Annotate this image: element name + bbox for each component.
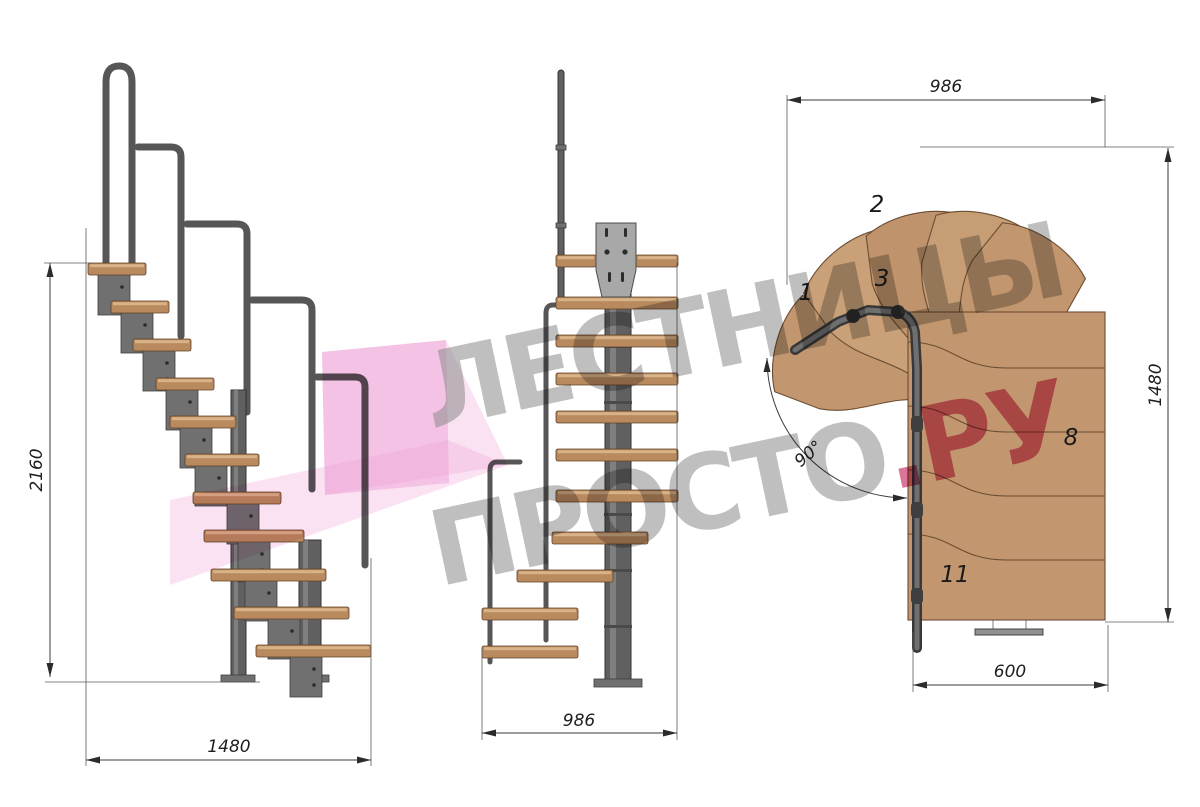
tread-top-highlight	[90, 264, 144, 267]
mounting-plate	[596, 223, 636, 297]
tread-top-highlight	[187, 455, 257, 458]
tread-top-highlight	[113, 302, 167, 305]
dimension-label-1480-plan: 1480	[1146, 363, 1166, 406]
dimension-side-width: 1480	[86, 558, 371, 766]
side-elevation-view: 2160 1480	[27, 66, 371, 766]
tread-top-highlight	[135, 340, 189, 343]
tread-top-highlight	[638, 256, 676, 259]
step-module	[290, 656, 322, 697]
handrail-loop	[106, 66, 132, 266]
rod-joint	[556, 145, 566, 150]
module-bolt	[217, 476, 221, 480]
module-bolt	[312, 667, 316, 671]
module-bolt	[267, 591, 271, 595]
tread-top-highlight	[236, 608, 347, 611]
tread-top-highlight	[258, 646, 369, 649]
tread-top-highlight	[172, 417, 234, 420]
dimension-label-600: 600	[994, 662, 1026, 682]
pole-base-flange-front	[594, 679, 642, 687]
dimension-label-2160: 2160	[27, 448, 47, 491]
tread-top-highlight	[558, 256, 594, 259]
handrail-segment	[252, 300, 312, 489]
module-bolt	[165, 361, 169, 365]
module-bolt	[188, 400, 192, 404]
tread-top-highlight	[484, 609, 576, 612]
module-bolt	[202, 438, 206, 442]
dimension-label-1480-side: 1480	[207, 737, 250, 757]
step-number-2: 2	[870, 192, 885, 218]
step-number-11: 11	[940, 562, 969, 588]
tread-top-highlight	[484, 647, 576, 650]
dimension-label-986-plan: 986	[930, 77, 963, 97]
module-bolt	[143, 323, 147, 327]
tread-top-highlight	[213, 570, 324, 573]
handrail-rod	[558, 70, 564, 304]
tread-top-highlight	[158, 379, 212, 382]
dimension-label-986-front: 986	[563, 711, 596, 731]
module-bolt	[312, 683, 316, 687]
pole-base-flange	[221, 675, 255, 682]
plan-base-bracket	[975, 620, 1043, 635]
module-bolt	[120, 285, 124, 289]
module-bolt	[290, 629, 294, 633]
drawing-canvas: 2160 1480	[0, 0, 1200, 807]
staircase-technical-drawing: 2160 1480	[0, 0, 1200, 807]
rod-joint	[556, 223, 566, 228]
